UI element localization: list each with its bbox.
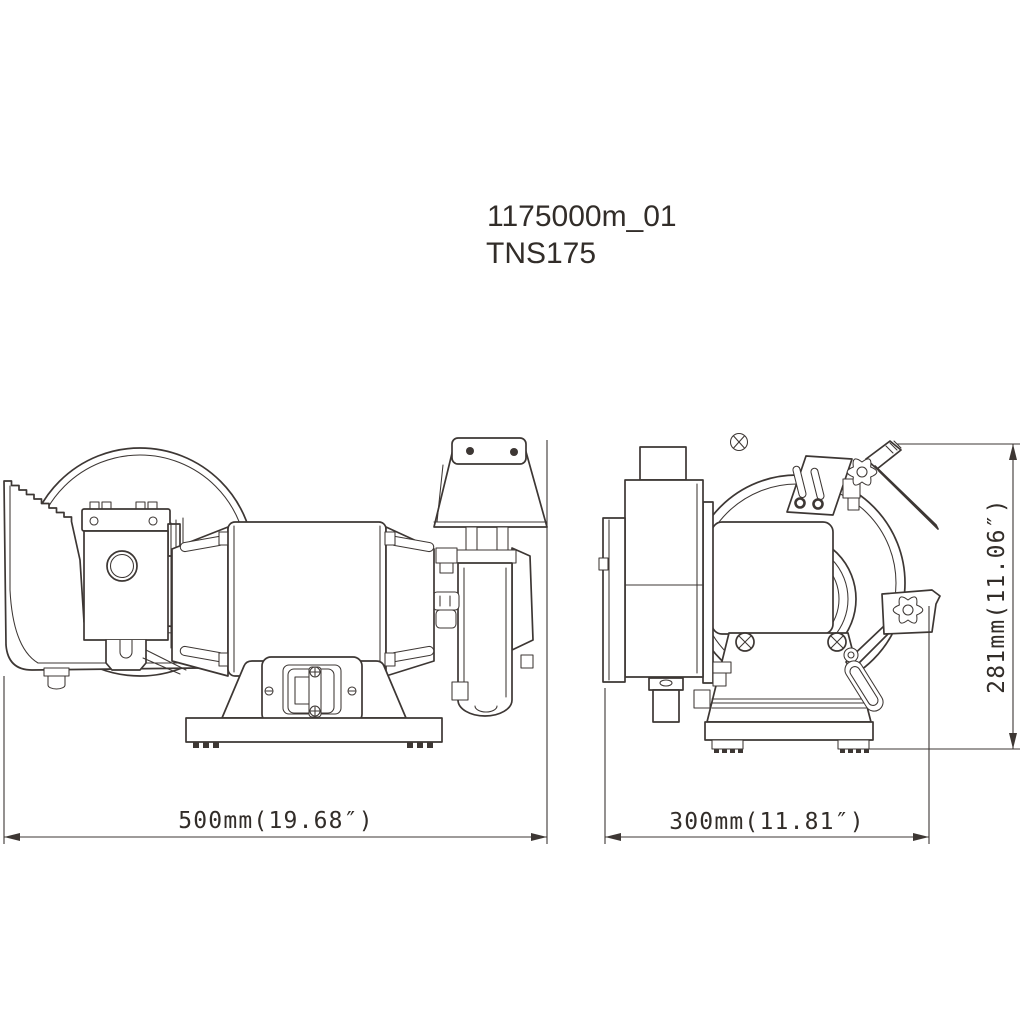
technical-drawing-page: 1175000m_01 TNS175 bbox=[0, 0, 1024, 1024]
front-view-drawing bbox=[4, 438, 547, 748]
foot-plate bbox=[186, 718, 442, 748]
drain-cap bbox=[44, 668, 69, 689]
side-view-drawing bbox=[599, 434, 940, 754]
motor-housing bbox=[172, 522, 434, 676]
model-number: TNS175 bbox=[486, 237, 596, 270]
trough-housing-side bbox=[599, 447, 713, 722]
height-dimension-label: 281mm(11.06″) bbox=[984, 498, 1010, 694]
tool-rest-clamp bbox=[433, 592, 459, 628]
tool-rest-side bbox=[846, 590, 940, 670]
drain-block bbox=[649, 678, 683, 722]
motor-body bbox=[228, 522, 386, 676]
drawing-canvas: 1175000m_01 TNS175 bbox=[0, 0, 1024, 1024]
dry-wheel-assembly bbox=[433, 438, 547, 716]
drawing-number: 1175000m_01 bbox=[487, 200, 677, 233]
motor-body-side bbox=[712, 522, 833, 634]
width-dimension-label: 500mm(19.68″) bbox=[178, 808, 374, 834]
switch-panel bbox=[262, 657, 362, 723]
depth-dimension-label: 300mm(11.81″) bbox=[669, 809, 865, 835]
